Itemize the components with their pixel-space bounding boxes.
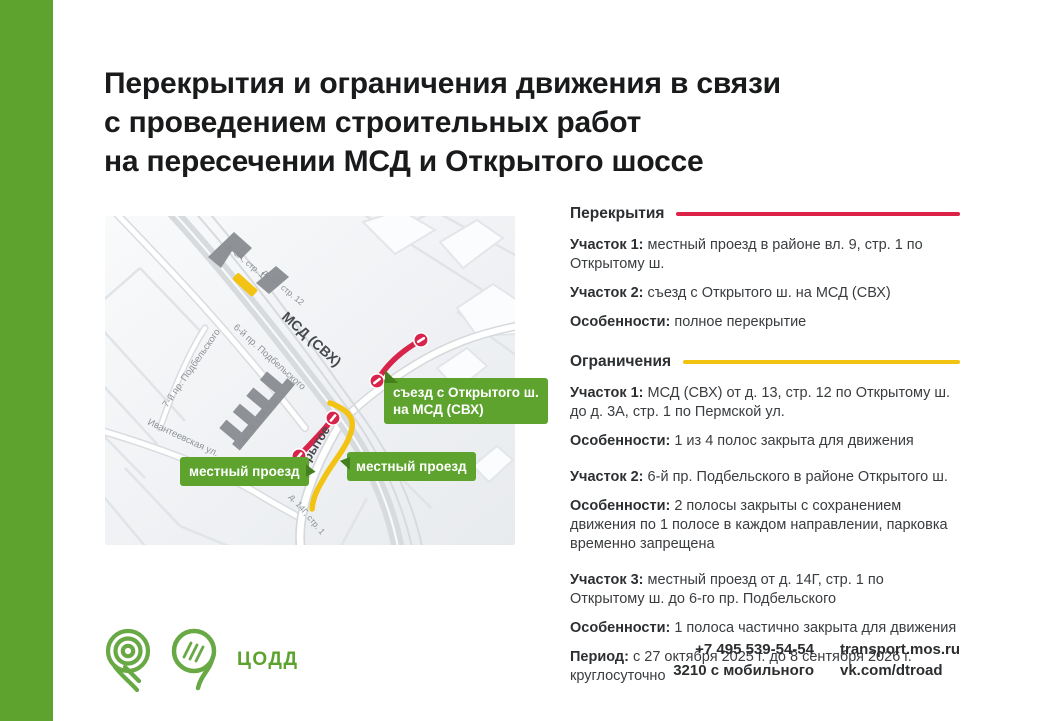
map: 6-й пр. Подбельского 7-й пр. Подбельског… (105, 216, 515, 545)
callout-local-passage-right: местный проезд (347, 452, 476, 481)
title-line-2: с проведением строительных работ (104, 106, 641, 139)
social-link: vk.com/dtroad (840, 660, 960, 681)
codd-logo-icon (167, 626, 223, 694)
restriction-item: Участок 3: местный проезд от д. 14Г, стр… (570, 571, 960, 609)
callout-local-left-label: местный проезд (189, 464, 300, 479)
callout-local-passage-left: местный проезд (180, 457, 309, 486)
restriction-item: Участок 1: МСД (СВХ) от д. 13, стр. 12 п… (570, 384, 960, 422)
title-line-3: на пересечении МСД и Открытого шоссе (104, 145, 704, 178)
closures-section: Перекрытия Участок 1: местный проезд в р… (570, 205, 960, 332)
moscow-transport-logo-icon (103, 626, 157, 694)
site-link: transport.mos.ru (840, 639, 960, 660)
closures-heading: Перекрытия (570, 205, 664, 223)
title-line-1: Перекрытия и ограничения движения в связ… (104, 67, 781, 100)
phone-mobile: 3210 с мобильного (673, 660, 814, 681)
links-block: transport.mos.ru vk.com/dtroad (840, 639, 960, 681)
callout-ramp-closure: съезд с Открытого ш. на МСД (СВХ) (384, 378, 548, 424)
brand-logos: ЦОДД (103, 626, 298, 694)
restrictions-rule (683, 360, 960, 364)
callout-ramp-line2: на МСД (СВХ) (393, 402, 484, 417)
brand-name: ЦОДД (237, 649, 298, 671)
contacts: +7 495 539-54-54 3210 с мобильного trans… (673, 639, 960, 681)
footer: ЦОДД +7 495 539-54-54 3210 с мобильного … (103, 620, 960, 700)
restrictions-header: Ограничения (570, 353, 960, 371)
restriction-item: Особенности: 1 из 4 полос закрыта для дв… (570, 432, 960, 451)
closure-item: Участок 2: съезд с Открытого ш. на МСД (… (570, 284, 960, 303)
left-accent-bar (0, 0, 53, 721)
closure-item: Особенности: полное перекрытие (570, 313, 960, 332)
closure-item: Участок 1: местный проезд в районе вл. 9… (570, 236, 960, 274)
restrictions-heading: Ограничения (570, 353, 671, 371)
closures-rule (676, 212, 960, 216)
closures-header: Перекрытия (570, 205, 960, 223)
callout-ramp-line1: съезд с Открытого ш. (393, 385, 539, 400)
callout-local-right-label: местный проезд (356, 459, 467, 474)
page-title: Перекрытия и ограничения движения в связ… (104, 64, 781, 181)
phone-block: +7 495 539-54-54 3210 с мобильного (673, 639, 814, 681)
phone-number: +7 495 539-54-54 (673, 639, 814, 660)
restriction-item: Особенности: 2 полосы закрыты с сохранен… (570, 497, 960, 554)
restriction-item: Участок 2: 6-й пр. Подбельского в районе… (570, 468, 960, 487)
